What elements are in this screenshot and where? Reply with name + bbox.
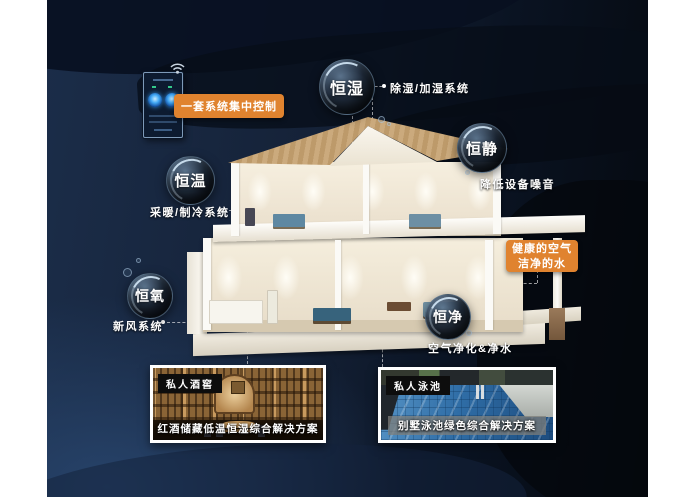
furniture-kitchen-cabinet	[209, 300, 263, 324]
bubble-constant-quiet: 恒静	[457, 123, 507, 173]
panel-readout	[149, 121, 177, 123]
mini-bubble	[378, 116, 385, 123]
mini-bubble	[466, 330, 472, 336]
note-noise-reduction: 降低设备噪音	[480, 176, 555, 192]
bubble-label: 恒净	[433, 307, 463, 327]
smart-home-infographic: 一套系统集中控制 健康的空气 洁净的水 恒湿 恒静 恒温 恒氧 恒净 除湿/加湿…	[47, 0, 648, 497]
photo-wine-cellar: 私人酒窖 红酒储藏低温恒湿综合解决方案	[150, 365, 326, 443]
furniture-dining-table	[313, 308, 351, 321]
panel-led	[168, 86, 172, 88]
house-wall-pier	[493, 164, 501, 234]
connector-dot	[382, 84, 386, 88]
house-wall-pier	[231, 162, 239, 236]
callout-line2: 洁净的水	[506, 257, 578, 272]
house-pillar-base	[549, 308, 565, 340]
mini-bubble	[123, 268, 132, 277]
bubble-constant-temperature: 恒温	[166, 156, 215, 205]
background-wave	[47, 0, 553, 97]
mini-bubble	[387, 122, 391, 126]
photo-caption: 红酒储藏低温恒湿综合解决方案	[157, 421, 319, 436]
wine-cellar-picture	[231, 381, 245, 394]
bubble-label: 恒氧	[135, 286, 165, 306]
bubble-constant-purity: 恒净	[425, 294, 471, 340]
bubble-label: 恒静	[466, 138, 498, 159]
bubble-constant-humidity: 恒湿	[319, 59, 375, 115]
panel-readout	[154, 129, 172, 131]
connector-line	[375, 86, 382, 87]
bubble-constant-oxygen: 恒氧	[127, 273, 173, 319]
note-purification-system: 空气净化&净水	[428, 340, 512, 356]
furniture-tv	[245, 208, 255, 226]
control-callout-label: 一套系统集中控制	[174, 94, 284, 118]
panel-dial	[148, 93, 162, 107]
panel-readout	[149, 115, 177, 117]
mini-bubble	[136, 258, 141, 263]
cutaway-house-illustration	[185, 112, 585, 362]
note-heating-cooling-system: 采暖/制冷系统	[150, 204, 230, 220]
wifi-icon	[169, 61, 186, 80]
photo-tag: 私人泳池	[386, 376, 450, 395]
mini-bubble	[465, 170, 470, 175]
furniture-fridge	[267, 290, 278, 324]
photo-caption: 别墅泳池绿色综合解决方案	[388, 416, 546, 435]
house-wall-pier	[485, 240, 493, 330]
note-fresh-air-system: 新风系统	[113, 318, 163, 334]
poster-page: 一套系统集中控制 健康的空气 洁净的水 恒湿 恒静 恒温 恒氧 恒净 除湿/加湿…	[0, 0, 700, 497]
house-wall-pier	[363, 164, 369, 234]
air-water-callout-box: 健康的空气 洁净的水	[506, 240, 578, 272]
furniture-bed	[273, 214, 305, 227]
bubble-label: 恒湿	[330, 75, 364, 99]
photo-private-pool: 私人泳池 别墅泳池绿色综合解决方案	[378, 367, 556, 443]
furniture-tv-console	[387, 302, 411, 311]
bubble-label: 恒温	[174, 170, 206, 191]
note-dehumidify-system: 除湿/加湿系统	[390, 80, 470, 96]
panel-led	[152, 86, 156, 88]
callout-line1: 健康的空气	[506, 242, 578, 257]
furniture-bed	[409, 214, 441, 227]
pool-ladder	[476, 385, 479, 399]
photo-tag: 私人酒窖	[158, 374, 222, 393]
